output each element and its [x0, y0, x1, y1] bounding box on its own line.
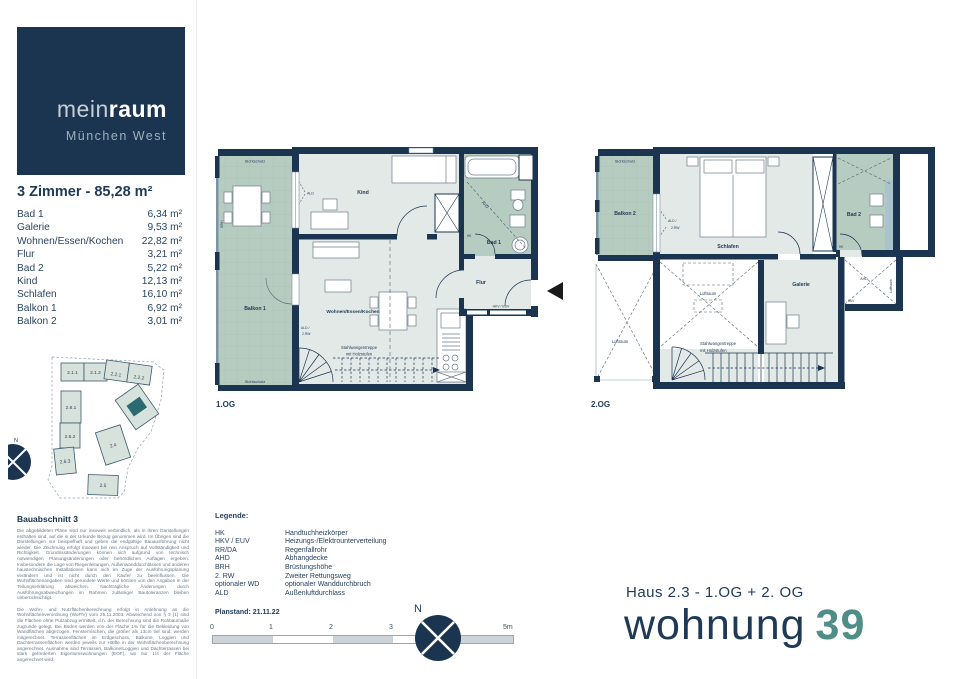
- kitchen-counter: [437, 309, 466, 382]
- pillow: [736, 160, 764, 173]
- site-building-label: 2.6.2: [65, 434, 76, 440]
- door-opening: [459, 270, 464, 298]
- toilet: [513, 200, 523, 211]
- table-row: Galerie9,53 m²: [17, 221, 182, 234]
- table-row: Bad 25,22 m²: [17, 262, 182, 275]
- compass-n-label: N: [414, 603, 422, 615]
- luftraum-label: Luftraum: [889, 279, 893, 293]
- table-row: Bad 16,34 m²: [17, 208, 182, 221]
- wall-niche: [490, 311, 526, 315]
- bad2-floor: [836, 154, 893, 250]
- compass-icon: N: [406, 598, 466, 664]
- brand-light: mein: [57, 96, 109, 122]
- balcony-chair: [262, 212, 270, 223]
- legend-abbr: ALD: [215, 590, 285, 599]
- ald-rw-label: ALD /: [668, 219, 677, 223]
- washing-machine: [512, 237, 528, 253]
- room-label-wohnen: Wohnen/Essen/Kochen: [326, 309, 379, 315]
- dining-chair: [408, 297, 416, 308]
- balcony-chair: [262, 192, 270, 203]
- room-label-balkon1: Balkon 1: [244, 306, 266, 312]
- site-building-label: 2.5: [100, 483, 107, 489]
- wohnung-word: wohnung: [624, 601, 806, 649]
- room-name: Galerie: [17, 221, 50, 234]
- legend-abbr: HK: [215, 530, 285, 539]
- room-area: 22,82 m²: [142, 235, 182, 248]
- legend-desc: Zweiter Rettungsweg: [285, 573, 351, 580]
- pillow: [704, 160, 732, 173]
- page-title: 3 Zimmer - 85,28 m²: [17, 184, 152, 200]
- room-name: Bad 1: [17, 208, 44, 221]
- shaft-rrda: [519, 155, 533, 180]
- nightstand: [768, 157, 779, 166]
- ahd-label: AHD: [860, 277, 868, 281]
- room-label-bad1: Bad 1: [487, 240, 501, 246]
- legend-abbr: optionaler WD: [215, 581, 285, 590]
- sichtschutz-label: Sichtschutz: [245, 159, 265, 164]
- scale-tick: 0: [210, 624, 214, 631]
- bath-sink: [870, 194, 883, 206]
- legend-desc: Außenluftdurchlass: [285, 590, 345, 597]
- brand-subtitle: München West: [66, 129, 167, 143]
- legend-abbr: HKV / EUV: [215, 538, 285, 547]
- room-name: Balkon 1: [17, 302, 57, 315]
- room-label-bad2: Bad 2: [847, 212, 861, 218]
- sichtschutz-label: Sichtschutz: [615, 159, 635, 164]
- room-name: Kind: [17, 275, 37, 288]
- site-building-label: 2.6.1: [66, 405, 77, 411]
- table-row: Schlafen16,10 m²: [17, 288, 182, 301]
- table-row: Kind12,13 m²: [17, 275, 182, 288]
- site-building: [127, 363, 152, 385]
- stairs-label: Stahlwangentreppe: [341, 345, 378, 350]
- floor1-label: 1.OG: [216, 400, 235, 409]
- room-area: 3,01 m²: [147, 315, 182, 328]
- ald-rw-label: ALD /: [301, 326, 310, 330]
- stove-burner: [443, 364, 449, 370]
- legend-desc: Brüstungshöhe: [285, 564, 332, 571]
- wall-niche: [467, 311, 487, 315]
- room-label-flur: Flur: [476, 280, 486, 286]
- ald-label: ALD: [307, 192, 314, 196]
- site-plan: 2.1.1 2.1.2 2.2.1 2.2.2 2.6.1 2.6.2 2.6.…: [8, 350, 200, 522]
- room-area: 5,22 m²: [147, 262, 182, 275]
- legend-row: BRHBrüstungshöhe: [215, 564, 387, 573]
- room-label-kind: Kind: [357, 190, 369, 196]
- dining-chair: [370, 297, 378, 308]
- floorplan-1og: Sichtschutz Sichtschutz Balkon 1 BRH ALD…: [213, 142, 567, 410]
- brand-bold: raum: [109, 96, 167, 122]
- floor2-label: 2.OG: [591, 400, 610, 409]
- disclaimer-paragraph: Die abgebildeten Pläne sind nur insoweit…: [17, 528, 189, 601]
- scale-bar: 0 1 2 3 4 5m: [211, 624, 523, 648]
- legend-row: ALDAußenluftdurchlass: [215, 590, 387, 599]
- table-row: Wohnen/Essen/Kochen22,82 m²: [17, 235, 182, 248]
- stove-burner: [452, 355, 458, 361]
- door-opening: [840, 250, 862, 257]
- scale-segment: [213, 636, 273, 643]
- room-area-table: Bad 16,34 m² Galerie9,53 m² Wohnen/Essen…: [17, 208, 182, 329]
- entrance-arrow-icon: [547, 282, 563, 300]
- balcony-door: [292, 274, 299, 305]
- legal-disclaimer: Die abgebildeten Pläne sind nur insoweit…: [17, 528, 189, 669]
- wohnung-number: 39: [816, 601, 866, 649]
- nightstand: [687, 157, 698, 166]
- scale-bar-strip: [212, 635, 514, 644]
- stove-burner: [452, 364, 458, 370]
- legend-desc: Abhangdecke: [285, 555, 328, 562]
- haus-title: Haus 2.3 - 1.OG + 2. OG: [626, 584, 804, 601]
- window: [409, 148, 433, 153]
- room-area: 16,10 m²: [142, 288, 182, 301]
- legend-desc: optionaler Wanddurchbruch: [285, 581, 371, 588]
- galerie-desk: [766, 302, 786, 344]
- site-building-label: 2.6.3: [59, 458, 71, 465]
- table-row: Balkon 23,01 m²: [17, 315, 182, 328]
- legend-title: Legende:: [215, 512, 387, 521]
- dining-chair: [370, 315, 378, 326]
- scale-tick: 1: [269, 624, 273, 631]
- legend-abbr: RR/DA: [215, 547, 285, 556]
- dashed-sofa: [683, 263, 733, 285]
- site-building-highlighted: [115, 384, 159, 430]
- room-area: 3,21 m²: [147, 248, 182, 261]
- room-name: Balkon 2: [17, 315, 57, 328]
- legend-row: AHDAbhangdecke: [215, 555, 387, 564]
- stairs-label: Stahlwangentreppe: [700, 341, 737, 346]
- sofa: [313, 242, 359, 258]
- hkv-euv-label: HKV / EUV: [493, 305, 511, 309]
- scale-tick: 2: [329, 624, 333, 631]
- ald-rw-label: 2.RW: [671, 226, 680, 230]
- legend-row: HKHandtuchheizkörper: [215, 530, 387, 539]
- legend-row: HKV / EUVHeizungs-/Elektrounterverteilun…: [215, 538, 387, 547]
- stairs-label: mit Holzstufen: [346, 352, 373, 357]
- disclaimer-paragraph: Die Wohn- und Nutzflächenberechnung erfo…: [17, 607, 189, 663]
- site-compass-icon: N: [8, 438, 31, 480]
- legend-desc: Heizungs-/Elektrounterverteilung: [285, 538, 387, 545]
- galerie-chair: [787, 315, 799, 328]
- room-area: 6,92 m²: [147, 302, 182, 315]
- entrance-opening: [531, 280, 538, 306]
- legend-row: 2. RWZweiter Rettungsweg: [215, 573, 387, 582]
- room-area: 6,34 m²: [147, 208, 182, 221]
- sichtschutz-label: Sichtschutz: [245, 379, 265, 384]
- coffee-table: [325, 280, 351, 292]
- brh-label: BRH: [220, 220, 224, 228]
- site-plan-title: Bauabschnitt 3: [17, 514, 78, 524]
- scale-tick: 5m: [503, 624, 513, 631]
- brand-logo: meinraum München West: [17, 27, 185, 175]
- plan-date: Planstand: 21.11.22: [215, 609, 280, 616]
- room-name: Bad 2: [17, 262, 44, 275]
- legend-abbr: AHD: [215, 555, 285, 564]
- luftraum-label: Luftraum: [612, 339, 629, 344]
- luftraum-label: Luftraum: [700, 291, 717, 296]
- ald-rw-label: 2.RW: [302, 332, 311, 336]
- apartment-title: wohnung39: [624, 601, 865, 650]
- table-row: Flur3,21 m²: [17, 248, 182, 261]
- floor-plan-sheet: meinraum München West 3 Zimmer - 85,28 m…: [0, 0, 960, 679]
- site-building-label: 2.1.1: [67, 370, 78, 376]
- room-label-balkon2: Balkon 2: [614, 211, 636, 217]
- legend-abbr: BRH: [215, 564, 285, 573]
- toilet: [511, 190, 525, 200]
- balcony-table: [233, 186, 261, 226]
- legend-abbr: 2. RW: [215, 573, 285, 582]
- scale-segment: [333, 636, 393, 643]
- bath-sink: [510, 215, 525, 227]
- floorplan-2og: Sichtschutz Balkon 2 ALD / 2.RW Schlafen…: [588, 142, 943, 410]
- hkv-label: HKV: [848, 299, 855, 303]
- dashed-table: [694, 300, 722, 312]
- room-name: Flur: [17, 248, 35, 261]
- room-area: 12,13 m²: [142, 275, 182, 288]
- scale-tick: 3: [389, 624, 393, 631]
- legend-desc: Handtuchheizkörper: [285, 530, 348, 537]
- luftraum-mid: [660, 262, 758, 347]
- room-label-galerie: Galerie: [792, 282, 810, 288]
- luftraum-left: [596, 264, 658, 380]
- room-name: Schlafen: [17, 288, 57, 301]
- table-row: Balkon 16,92 m²: [17, 302, 182, 315]
- site-building-label: 2.1.2: [90, 370, 101, 376]
- stairs-label: mit Holzstufen: [700, 348, 727, 353]
- flur-floor: [464, 256, 531, 309]
- legend: Legende: HKHandtuchheizkörper HKV / EUVH…: [215, 512, 387, 598]
- balcony-chair: [224, 212, 232, 223]
- dining-chair: [408, 315, 416, 326]
- dining-table: [379, 292, 407, 330]
- room-label-schlafen: Schlafen: [717, 244, 739, 250]
- kind-bed: [392, 156, 456, 183]
- shower-strip: [885, 180, 893, 250]
- legend-desc: Regenfallrohr: [285, 547, 327, 554]
- stair-floor: [660, 349, 758, 382]
- kitchen-sink: [441, 313, 460, 328]
- column-divider: [196, 0, 197, 679]
- brand-name: meinraum: [57, 96, 167, 123]
- stove-burner: [443, 355, 449, 361]
- kind-desk: [311, 212, 348, 229]
- compass-n-label: N: [14, 438, 18, 444]
- kind-chair: [323, 199, 337, 210]
- balcony-chair: [224, 192, 232, 203]
- legend-row: RR/DARegenfallrohr: [215, 547, 387, 556]
- site-building: [104, 360, 129, 382]
- scale-segment: [273, 636, 333, 643]
- room-name: Wohnen/Essen/Kochen: [17, 235, 123, 248]
- bath-sink: [870, 215, 883, 227]
- room-area: 9,53 m²: [147, 221, 182, 234]
- legend-row: optionaler WDoptionaler Wanddurchbruch: [215, 581, 387, 590]
